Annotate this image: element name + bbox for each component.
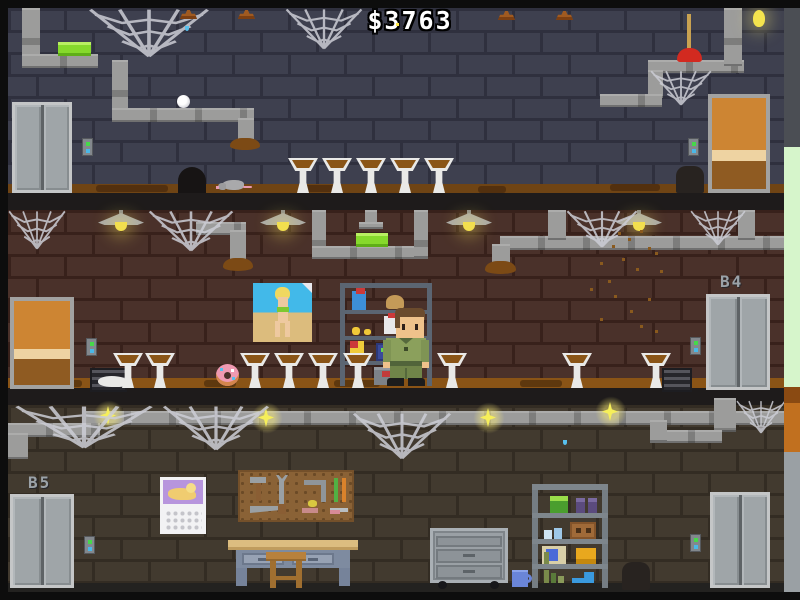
wheel <box>438 581 447 589</box>
green-box <box>550 496 568 513</box>
cobweb <box>352 412 452 460</box>
dirt-spill <box>223 258 253 271</box>
dirty-sink[interactable] <box>343 353 373 388</box>
orange-box <box>576 548 596 564</box>
map-edge-stone <box>784 452 800 592</box>
floor-label-b5: B5 <box>28 473 51 492</box>
face <box>396 317 424 338</box>
ceiling-lamp <box>98 210 144 232</box>
pipe <box>112 108 254 122</box>
tool-cart[interactable] <box>430 528 508 588</box>
dirty-sink[interactable] <box>145 353 175 388</box>
duck-item <box>352 327 360 335</box>
elevator-door[interactable] <box>12 102 72 193</box>
saw-icon <box>250 506 278 513</box>
eye <box>402 324 405 330</box>
elevator-call-button[interactable] <box>690 337 701 355</box>
stool <box>266 552 306 588</box>
spider-egg <box>177 95 190 108</box>
dirty-sink[interactable] <box>562 353 592 388</box>
money-display: $3763 <box>300 6 520 35</box>
pipe <box>312 246 428 259</box>
map-edge-orange <box>784 403 800 452</box>
elevator-call-button[interactable] <box>84 536 95 554</box>
dirty-sink[interactable] <box>322 158 352 193</box>
map-edge-green <box>784 147 800 387</box>
elevator-panel[interactable] <box>13 497 41 585</box>
ceiling-lamp <box>260 210 306 232</box>
floor-slab <box>8 193 800 210</box>
elevator-panel[interactable] <box>742 495 768 585</box>
basket <box>386 295 404 309</box>
water-drip <box>563 440 567 445</box>
fairy-light <box>480 408 498 428</box>
pegboard <box>238 470 354 522</box>
storage-shelf[interactable] <box>532 484 608 588</box>
cobweb <box>736 400 786 434</box>
pipe <box>548 210 566 240</box>
elevator-panel[interactable] <box>713 495 739 585</box>
elevator-door[interactable] <box>10 494 74 588</box>
light-switch[interactable] <box>688 138 699 156</box>
fairy-light <box>602 402 620 422</box>
elevator-door[interactable] <box>710 492 770 588</box>
bottle <box>544 570 549 583</box>
bottle <box>558 576 564 583</box>
plunger-handle <box>687 14 691 52</box>
elevator-call-button[interactable] <box>82 138 93 156</box>
pinup-poster[interactable] <box>253 283 312 342</box>
shoe <box>387 378 404 386</box>
light-switch[interactable] <box>86 338 97 356</box>
flies <box>585 225 675 337</box>
cobweb <box>650 70 712 106</box>
elevator-panel[interactable] <box>44 105 70 190</box>
lightbulb <box>753 10 765 27</box>
screwdriver-icon <box>334 478 338 502</box>
dirty-sink[interactable] <box>240 353 270 388</box>
floor-label-b4: B4 <box>720 272 743 291</box>
shoe <box>408 378 425 386</box>
rag[interactable] <box>98 376 128 387</box>
elevator-panel[interactable] <box>15 105 41 190</box>
cobweb <box>690 210 746 246</box>
eye <box>415 324 418 330</box>
donut-item[interactable] <box>216 364 239 386</box>
canister <box>588 498 597 513</box>
small-item <box>544 530 552 539</box>
cobweb <box>148 210 234 252</box>
trash-bag[interactable] <box>676 166 704 193</box>
dirty-sink[interactable] <box>424 158 454 193</box>
map-edge-darkorange <box>784 387 800 403</box>
bottle <box>544 552 549 564</box>
bottle <box>551 573 556 583</box>
cobweb <box>162 405 270 451</box>
player-character[interactable] <box>383 308 429 386</box>
dirty-sink[interactable] <box>641 353 671 388</box>
calendar <box>160 477 206 534</box>
game-viewport: B4 <box>0 0 800 600</box>
dirty-sink[interactable] <box>356 158 386 193</box>
elevator-door[interactable] <box>706 294 770 390</box>
pipe <box>714 398 736 432</box>
dirt-spill <box>485 261 516 274</box>
arm <box>421 340 429 364</box>
elevator-panel[interactable] <box>740 297 768 387</box>
duck-item <box>364 329 371 335</box>
drawer <box>436 536 502 547</box>
ceiling-lamp <box>446 210 492 232</box>
mug[interactable] <box>512 570 528 587</box>
rat[interactable] <box>218 176 250 192</box>
dirty-sink[interactable] <box>390 158 420 193</box>
cobweb <box>14 405 154 449</box>
mouse-hole <box>178 167 206 193</box>
trash-bag[interactable] <box>622 562 650 590</box>
pipe <box>724 8 742 66</box>
dirty-sink[interactable] <box>274 353 304 388</box>
wheel <box>490 581 499 589</box>
map-edge-gray <box>784 8 800 147</box>
dirty-sink[interactable] <box>308 353 338 388</box>
wooden-door[interactable] <box>10 297 74 389</box>
small-item <box>554 528 562 539</box>
pipe <box>22 54 98 68</box>
blue-boot <box>572 572 594 583</box>
dirty-sink[interactable] <box>437 353 467 388</box>
pipe <box>650 420 667 442</box>
elevator-call-button[interactable] <box>690 534 701 552</box>
elevator-panel[interactable] <box>44 497 72 585</box>
pipe <box>359 222 383 229</box>
sparkle <box>396 23 399 26</box>
wooden-door[interactable] <box>708 94 770 193</box>
water-drip <box>185 26 189 31</box>
elevator-panel[interactable] <box>709 297 737 387</box>
dirt-spill <box>230 138 260 150</box>
pipe <box>414 210 428 258</box>
green-soap-item[interactable] <box>58 42 91 56</box>
floor-b5-ground <box>8 583 800 592</box>
dirty-sink[interactable] <box>288 158 318 193</box>
brown-box <box>570 522 596 539</box>
green-soap-item[interactable] <box>356 233 388 247</box>
screwdriver-icon <box>342 478 346 502</box>
door-leaf[interactable] <box>14 301 70 385</box>
door-leaf[interactable] <box>712 98 766 189</box>
left-border <box>0 0 8 600</box>
canister <box>576 498 585 513</box>
bottom-border <box>0 592 800 600</box>
plunger[interactable] <box>677 48 702 62</box>
cobweb <box>8 210 66 250</box>
